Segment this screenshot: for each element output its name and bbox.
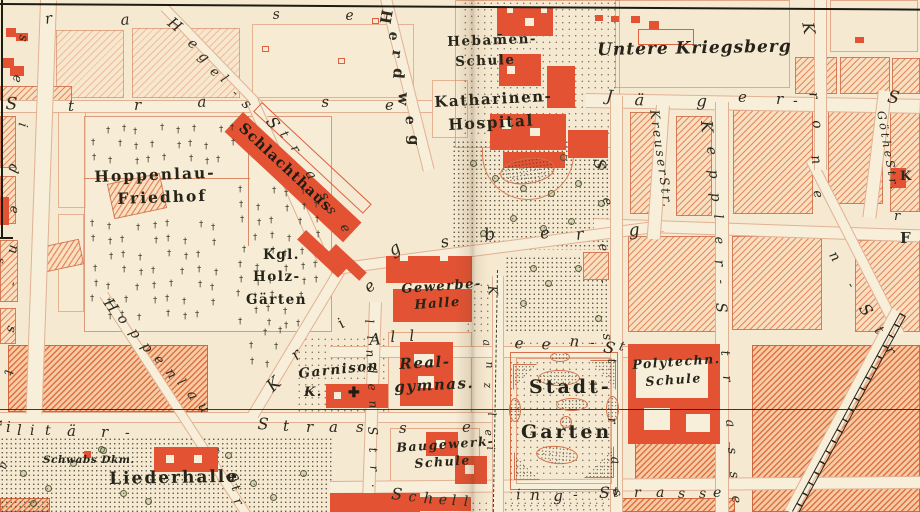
street-letter: e bbox=[541, 337, 551, 352]
grave-cross-icon: † bbox=[106, 283, 110, 292]
flower-bed bbox=[556, 398, 588, 411]
street-letter: s bbox=[727, 471, 741, 479]
grave-cross-icon: † bbox=[253, 234, 257, 243]
street-letter: l bbox=[363, 319, 375, 324]
grave-cross-icon: † bbox=[301, 263, 305, 272]
grid-line-tick bbox=[0, 237, 13, 239]
street-letter: n bbox=[484, 361, 496, 369]
grave-cross-icon: † bbox=[236, 290, 240, 299]
street-letter: r bbox=[368, 465, 380, 472]
tree-icon bbox=[250, 480, 257, 487]
tree-icon bbox=[270, 494, 277, 501]
tree-icon bbox=[575, 180, 582, 187]
label-kgl-holzgaerten: Gärten bbox=[246, 294, 307, 308]
grave-cross-icon: † bbox=[197, 266, 201, 275]
grave-cross-icon: † bbox=[231, 139, 235, 148]
grave-cross-icon: † bbox=[107, 223, 111, 232]
street-letter: t bbox=[606, 358, 618, 364]
grave-cross-icon: † bbox=[166, 310, 170, 319]
street-letter: - bbox=[573, 488, 578, 502]
tree-icon bbox=[595, 315, 602, 322]
street-letter: l bbox=[409, 329, 415, 344]
tree-icon bbox=[510, 215, 517, 222]
small-building bbox=[631, 16, 640, 23]
tree-icon bbox=[145, 498, 152, 505]
grave-cross-icon: † bbox=[287, 235, 291, 244]
grave-cross-icon: † bbox=[240, 216, 244, 225]
street-letter: l bbox=[390, 330, 396, 345]
tree-icon bbox=[530, 265, 537, 272]
grave-cross-icon: † bbox=[199, 221, 203, 230]
street-letter: a bbox=[608, 456, 622, 465]
label-hebammenschule: Hebam̄en- bbox=[447, 33, 537, 50]
grave-cross-icon: † bbox=[263, 329, 267, 338]
street-letter: r bbox=[894, 210, 900, 223]
street-letter: e bbox=[366, 383, 379, 391]
street-letter: i bbox=[6, 420, 11, 435]
street-letter: H bbox=[377, 8, 394, 25]
street-letter: r bbox=[712, 259, 727, 267]
label-kgl-holzgaerten: Kgl. bbox=[263, 249, 300, 263]
street-letter: l bbox=[464, 495, 469, 509]
street-letter: S bbox=[713, 302, 729, 314]
street-letter: s bbox=[272, 7, 280, 22]
street-letter: a bbox=[723, 419, 737, 428]
street-letter: e bbox=[10, 74, 24, 84]
building-row bbox=[330, 493, 420, 512]
grave-cross-icon: † bbox=[151, 267, 155, 276]
grave-cross-icon: † bbox=[136, 224, 140, 233]
city-map: Schlachthaus bbox=[0, 0, 920, 512]
grave-cross-icon: † bbox=[238, 318, 242, 327]
grave-cross-icon: † bbox=[239, 276, 243, 285]
grave-cross-icon: † bbox=[135, 284, 139, 293]
grave-cross-icon: † bbox=[109, 253, 113, 262]
street-letter: n bbox=[364, 349, 377, 358]
grave-cross-icon: † bbox=[121, 251, 125, 260]
label-liederhalle: Liederhalle bbox=[109, 469, 239, 488]
grave-cross-icon: † bbox=[183, 313, 187, 322]
grave-cross-icon: † bbox=[238, 186, 242, 195]
street-letter: S bbox=[5, 96, 18, 114]
grave-cross-icon: † bbox=[256, 204, 260, 213]
tree-icon bbox=[120, 490, 127, 497]
street-letter: l bbox=[17, 423, 22, 438]
grave-cross-icon: † bbox=[93, 265, 97, 274]
small-building bbox=[649, 21, 659, 29]
grave-cross-icon: † bbox=[216, 156, 220, 165]
street-letter: s bbox=[699, 487, 706, 501]
street-letter: e bbox=[385, 98, 394, 113]
street-letter: r bbox=[720, 375, 733, 382]
street-letter: z bbox=[482, 382, 493, 389]
grave-cross-icon: † bbox=[188, 140, 192, 149]
tree-icon bbox=[30, 500, 37, 507]
grave-cross-icon: † bbox=[298, 218, 302, 227]
grave-cross-icon: † bbox=[189, 155, 193, 164]
street-letter: e bbox=[704, 146, 719, 155]
street-letter: - bbox=[590, 336, 595, 350]
street-letter: S bbox=[391, 486, 403, 503]
tree-icon bbox=[20, 470, 27, 477]
tree-icon bbox=[548, 190, 555, 197]
grave-cross-icon: † bbox=[284, 322, 288, 331]
grave-cross-icon: † bbox=[211, 299, 215, 308]
grave-cross-icon: † bbox=[265, 361, 269, 370]
grave-cross-icon: † bbox=[108, 238, 112, 247]
grave-cross-icon: † bbox=[154, 237, 158, 246]
grave-cross-icon: † bbox=[272, 187, 276, 196]
tree-icon bbox=[575, 265, 582, 272]
grave-cross-icon: † bbox=[162, 154, 166, 163]
grave-cross-icon: † bbox=[150, 141, 154, 150]
street-letter: r bbox=[634, 486, 641, 500]
tree-icon bbox=[470, 160, 477, 167]
street-letter: n bbox=[569, 334, 579, 349]
grave-cross-icon: † bbox=[176, 127, 180, 136]
tree-icon bbox=[545, 280, 552, 287]
small-building bbox=[611, 16, 619, 22]
street-letter: e bbox=[7, 205, 21, 215]
grave-cross-icon: † bbox=[214, 269, 218, 278]
grave-cross-icon: † bbox=[274, 343, 278, 352]
label-hoppenlau-friedhof: Hoppenlau- bbox=[94, 165, 216, 185]
grave-cross-icon: † bbox=[182, 298, 186, 307]
street-letter: t bbox=[45, 424, 51, 438]
street-letter: S bbox=[257, 416, 269, 433]
street-letter: K bbox=[900, 170, 911, 183]
grave-cross-icon: † bbox=[165, 295, 169, 304]
grave-cross-icon: † bbox=[250, 358, 254, 367]
street-letter: p bbox=[708, 192, 723, 202]
street-letter: s bbox=[321, 95, 329, 110]
grave-cross-icon: † bbox=[152, 282, 156, 291]
grave-cross-icon: † bbox=[195, 311, 199, 320]
tree-icon bbox=[520, 185, 527, 192]
building-katharinenhospital bbox=[568, 130, 608, 158]
street-letter: e bbox=[539, 225, 551, 242]
street-letter: r bbox=[575, 226, 584, 243]
street-letter: A bbox=[369, 331, 381, 348]
label-schwabs-denkmal: Schwabs Dkm. bbox=[43, 455, 135, 466]
street-letter: r bbox=[101, 425, 108, 440]
grave-cross-icon: † bbox=[160, 124, 164, 133]
grave-cross-icon: † bbox=[192, 125, 196, 134]
grave-cross-icon: † bbox=[91, 235, 95, 244]
grave-cross-icon: † bbox=[120, 236, 124, 245]
grave-cross-icon: † bbox=[302, 278, 306, 287]
grave-cross-icon: † bbox=[269, 217, 273, 226]
grave-cross-icon: † bbox=[90, 220, 94, 229]
grave-cross-icon: † bbox=[196, 251, 200, 260]
small-building bbox=[6, 28, 16, 37]
street-letter: ä bbox=[634, 92, 644, 108]
grave-cross-icon: † bbox=[167, 250, 171, 259]
grave-cross-icon: † bbox=[283, 308, 287, 317]
street-letter: s bbox=[0, 257, 7, 264]
street-letter: g bbox=[628, 222, 640, 240]
grave-cross-icon: † bbox=[184, 253, 188, 262]
street-letter: g bbox=[406, 135, 421, 146]
street-letter: e bbox=[403, 116, 417, 125]
grave-cross-icon: † bbox=[302, 203, 306, 212]
garnison-cross-icon: ✚ bbox=[348, 386, 361, 400]
street-letter: - bbox=[793, 94, 798, 108]
grave-cross-icon: † bbox=[254, 307, 258, 316]
grave-cross-icon: † bbox=[91, 139, 95, 148]
grave-cross-icon: † bbox=[313, 261, 317, 270]
grave-cross-icon: † bbox=[242, 246, 246, 255]
grid-line-middle bbox=[0, 409, 920, 410]
grave-cross-icon: † bbox=[108, 157, 112, 166]
label-hebammenschule: Schule bbox=[455, 54, 516, 70]
building-outline bbox=[262, 46, 269, 52]
street-letter: g bbox=[696, 93, 707, 110]
tree-icon bbox=[45, 485, 52, 492]
grave-cross-icon: † bbox=[239, 201, 243, 210]
street-letter: e bbox=[713, 486, 721, 500]
grave-cross-icon: † bbox=[211, 224, 215, 233]
tree-icon bbox=[300, 470, 307, 477]
grave-cross-icon: † bbox=[230, 124, 234, 133]
street-letter: e bbox=[596, 243, 610, 252]
street-letter: e bbox=[345, 9, 354, 23]
street-letter: t bbox=[367, 447, 379, 453]
grave-cross-icon: † bbox=[94, 280, 98, 289]
grave-cross-icon: † bbox=[183, 238, 187, 247]
tree-icon bbox=[225, 452, 232, 459]
label-realgymnasium: Real- bbox=[399, 354, 451, 372]
building-outline bbox=[338, 58, 345, 64]
street-letter: e bbox=[600, 197, 614, 206]
grave-cross-icon: † bbox=[249, 342, 253, 351]
street-letter: a bbox=[329, 420, 338, 435]
label-kgl-holzgaerten: Holz- bbox=[253, 271, 301, 285]
grave-cross-icon: † bbox=[153, 222, 157, 231]
street-letter: S bbox=[591, 158, 608, 170]
grave-cross-icon: † bbox=[278, 327, 282, 336]
grave-cross-icon: † bbox=[138, 254, 142, 263]
grave-cross-icon: † bbox=[212, 239, 216, 248]
street-letter: p bbox=[706, 169, 721, 179]
grave-cross-icon: † bbox=[169, 280, 173, 289]
grave-cross-icon: † bbox=[296, 320, 300, 329]
street-letter: s bbox=[678, 487, 685, 501]
small-building bbox=[595, 15, 603, 21]
grave-cross-icon: † bbox=[106, 127, 110, 136]
grave-cross-icon: † bbox=[257, 219, 261, 228]
label-garnison: K. bbox=[304, 386, 323, 399]
street-letter: ä bbox=[67, 424, 76, 439]
tree-icon bbox=[560, 154, 567, 161]
street-letter: g bbox=[553, 489, 563, 504]
street-letter: e bbox=[462, 420, 471, 435]
grave-cross-icon: † bbox=[124, 296, 128, 305]
label-katharinenhospital: Hospital bbox=[448, 113, 534, 133]
grave-cross-icon: † bbox=[210, 284, 214, 293]
grave-cross-icon: † bbox=[267, 319, 271, 328]
street-letter: t bbox=[68, 99, 74, 114]
label-stadtgarten: Garten bbox=[521, 423, 612, 442]
flower-bed bbox=[550, 352, 570, 362]
street-letter: r bbox=[306, 420, 313, 435]
grave-cross-icon: † bbox=[204, 143, 208, 152]
street-letter: e bbox=[712, 236, 726, 245]
grave-cross-icon: † bbox=[165, 220, 169, 229]
grave-cross-icon: † bbox=[177, 142, 181, 151]
street-letter: - bbox=[125, 426, 130, 440]
street-letter: s bbox=[399, 421, 407, 436]
grave-cross-icon: † bbox=[270, 232, 274, 241]
grave-cross-icon: † bbox=[198, 281, 202, 290]
grave-cross-icon: † bbox=[134, 143, 138, 152]
street-letter: l bbox=[452, 494, 457, 508]
street-letter: e bbox=[729, 495, 743, 504]
grave-cross-icon: † bbox=[300, 248, 304, 257]
grave-cross-icon: † bbox=[146, 156, 150, 165]
street-letter: a bbox=[120, 12, 130, 28]
street-letter: t bbox=[613, 486, 619, 500]
small-building bbox=[855, 37, 864, 43]
street-letter: i bbox=[365, 335, 377, 340]
street-letter: J bbox=[606, 88, 614, 104]
grave-cross-icon: † bbox=[139, 269, 143, 278]
tree-icon bbox=[100, 447, 107, 454]
street-letter: s bbox=[725, 447, 739, 455]
grave-cross-icon: † bbox=[284, 190, 288, 199]
street-letter: c bbox=[408, 490, 417, 504]
street-letter: r bbox=[776, 92, 783, 107]
street-letter: d bbox=[390, 67, 406, 79]
grid-line-left bbox=[1, 0, 3, 239]
grave-cross-icon: † bbox=[153, 297, 157, 306]
grave-cross-icon: † bbox=[166, 235, 170, 244]
street-letter: i bbox=[30, 424, 34, 438]
street-letter: e bbox=[439, 493, 448, 507]
tree-icon bbox=[568, 218, 575, 225]
grave-cross-icon: † bbox=[314, 276, 318, 285]
grave-cross-icon: † bbox=[285, 205, 289, 214]
street-letter: a bbox=[197, 95, 207, 110]
label-gewerbehalle: Halle bbox=[414, 296, 461, 312]
street-letter: l bbox=[486, 412, 497, 416]
street-letter: n bbox=[367, 400, 380, 409]
grave-cross-icon: † bbox=[315, 216, 319, 225]
grave-cross-icon: † bbox=[90, 295, 94, 304]
flower-bed bbox=[509, 398, 521, 422]
grave-cross-icon: † bbox=[316, 231, 320, 240]
street-letter: S bbox=[599, 485, 610, 501]
street-letter: r bbox=[134, 98, 141, 113]
grave-cross-icon: † bbox=[118, 140, 122, 149]
grave-cross-icon: † bbox=[122, 125, 126, 134]
label-untere-kriegsberg: Untere Kriegsberg bbox=[597, 39, 792, 59]
street-letter: n bbox=[530, 488, 540, 503]
street-letter: h bbox=[423, 491, 433, 506]
street-letter: K bbox=[698, 120, 715, 133]
grave-cross-icon: † bbox=[133, 128, 137, 137]
label-stadtgarten: Stadt- bbox=[529, 378, 612, 397]
street-letter: a bbox=[481, 339, 493, 346]
street-letter: S bbox=[365, 426, 379, 436]
street-letter: t bbox=[283, 419, 289, 434]
grave-cross-icon: † bbox=[219, 126, 223, 135]
grave-cross-icon: † bbox=[180, 268, 184, 277]
grave-cross-icon: † bbox=[92, 154, 96, 163]
label-hoppenlau-friedhof: Friedhof bbox=[117, 188, 207, 207]
label-realgymnasium: gymnas. bbox=[394, 376, 475, 395]
grave-cross-icon: † bbox=[238, 261, 242, 270]
grave-cross-icon: † bbox=[137, 314, 141, 323]
street-letter: K bbox=[485, 285, 499, 296]
street-letter: i bbox=[516, 488, 521, 502]
street-letter: F bbox=[900, 231, 911, 246]
tree-icon bbox=[520, 300, 527, 307]
tree-icon bbox=[492, 175, 499, 182]
street-letter: w bbox=[395, 92, 411, 106]
street-letter: e bbox=[738, 90, 747, 105]
grave-cross-icon: † bbox=[301, 188, 305, 197]
street-letter: e bbox=[514, 336, 524, 351]
street-letter: a bbox=[656, 486, 664, 500]
grave-cross-icon: † bbox=[122, 266, 126, 275]
street-north bbox=[0, 100, 432, 113]
street-letter: s bbox=[356, 420, 364, 435]
